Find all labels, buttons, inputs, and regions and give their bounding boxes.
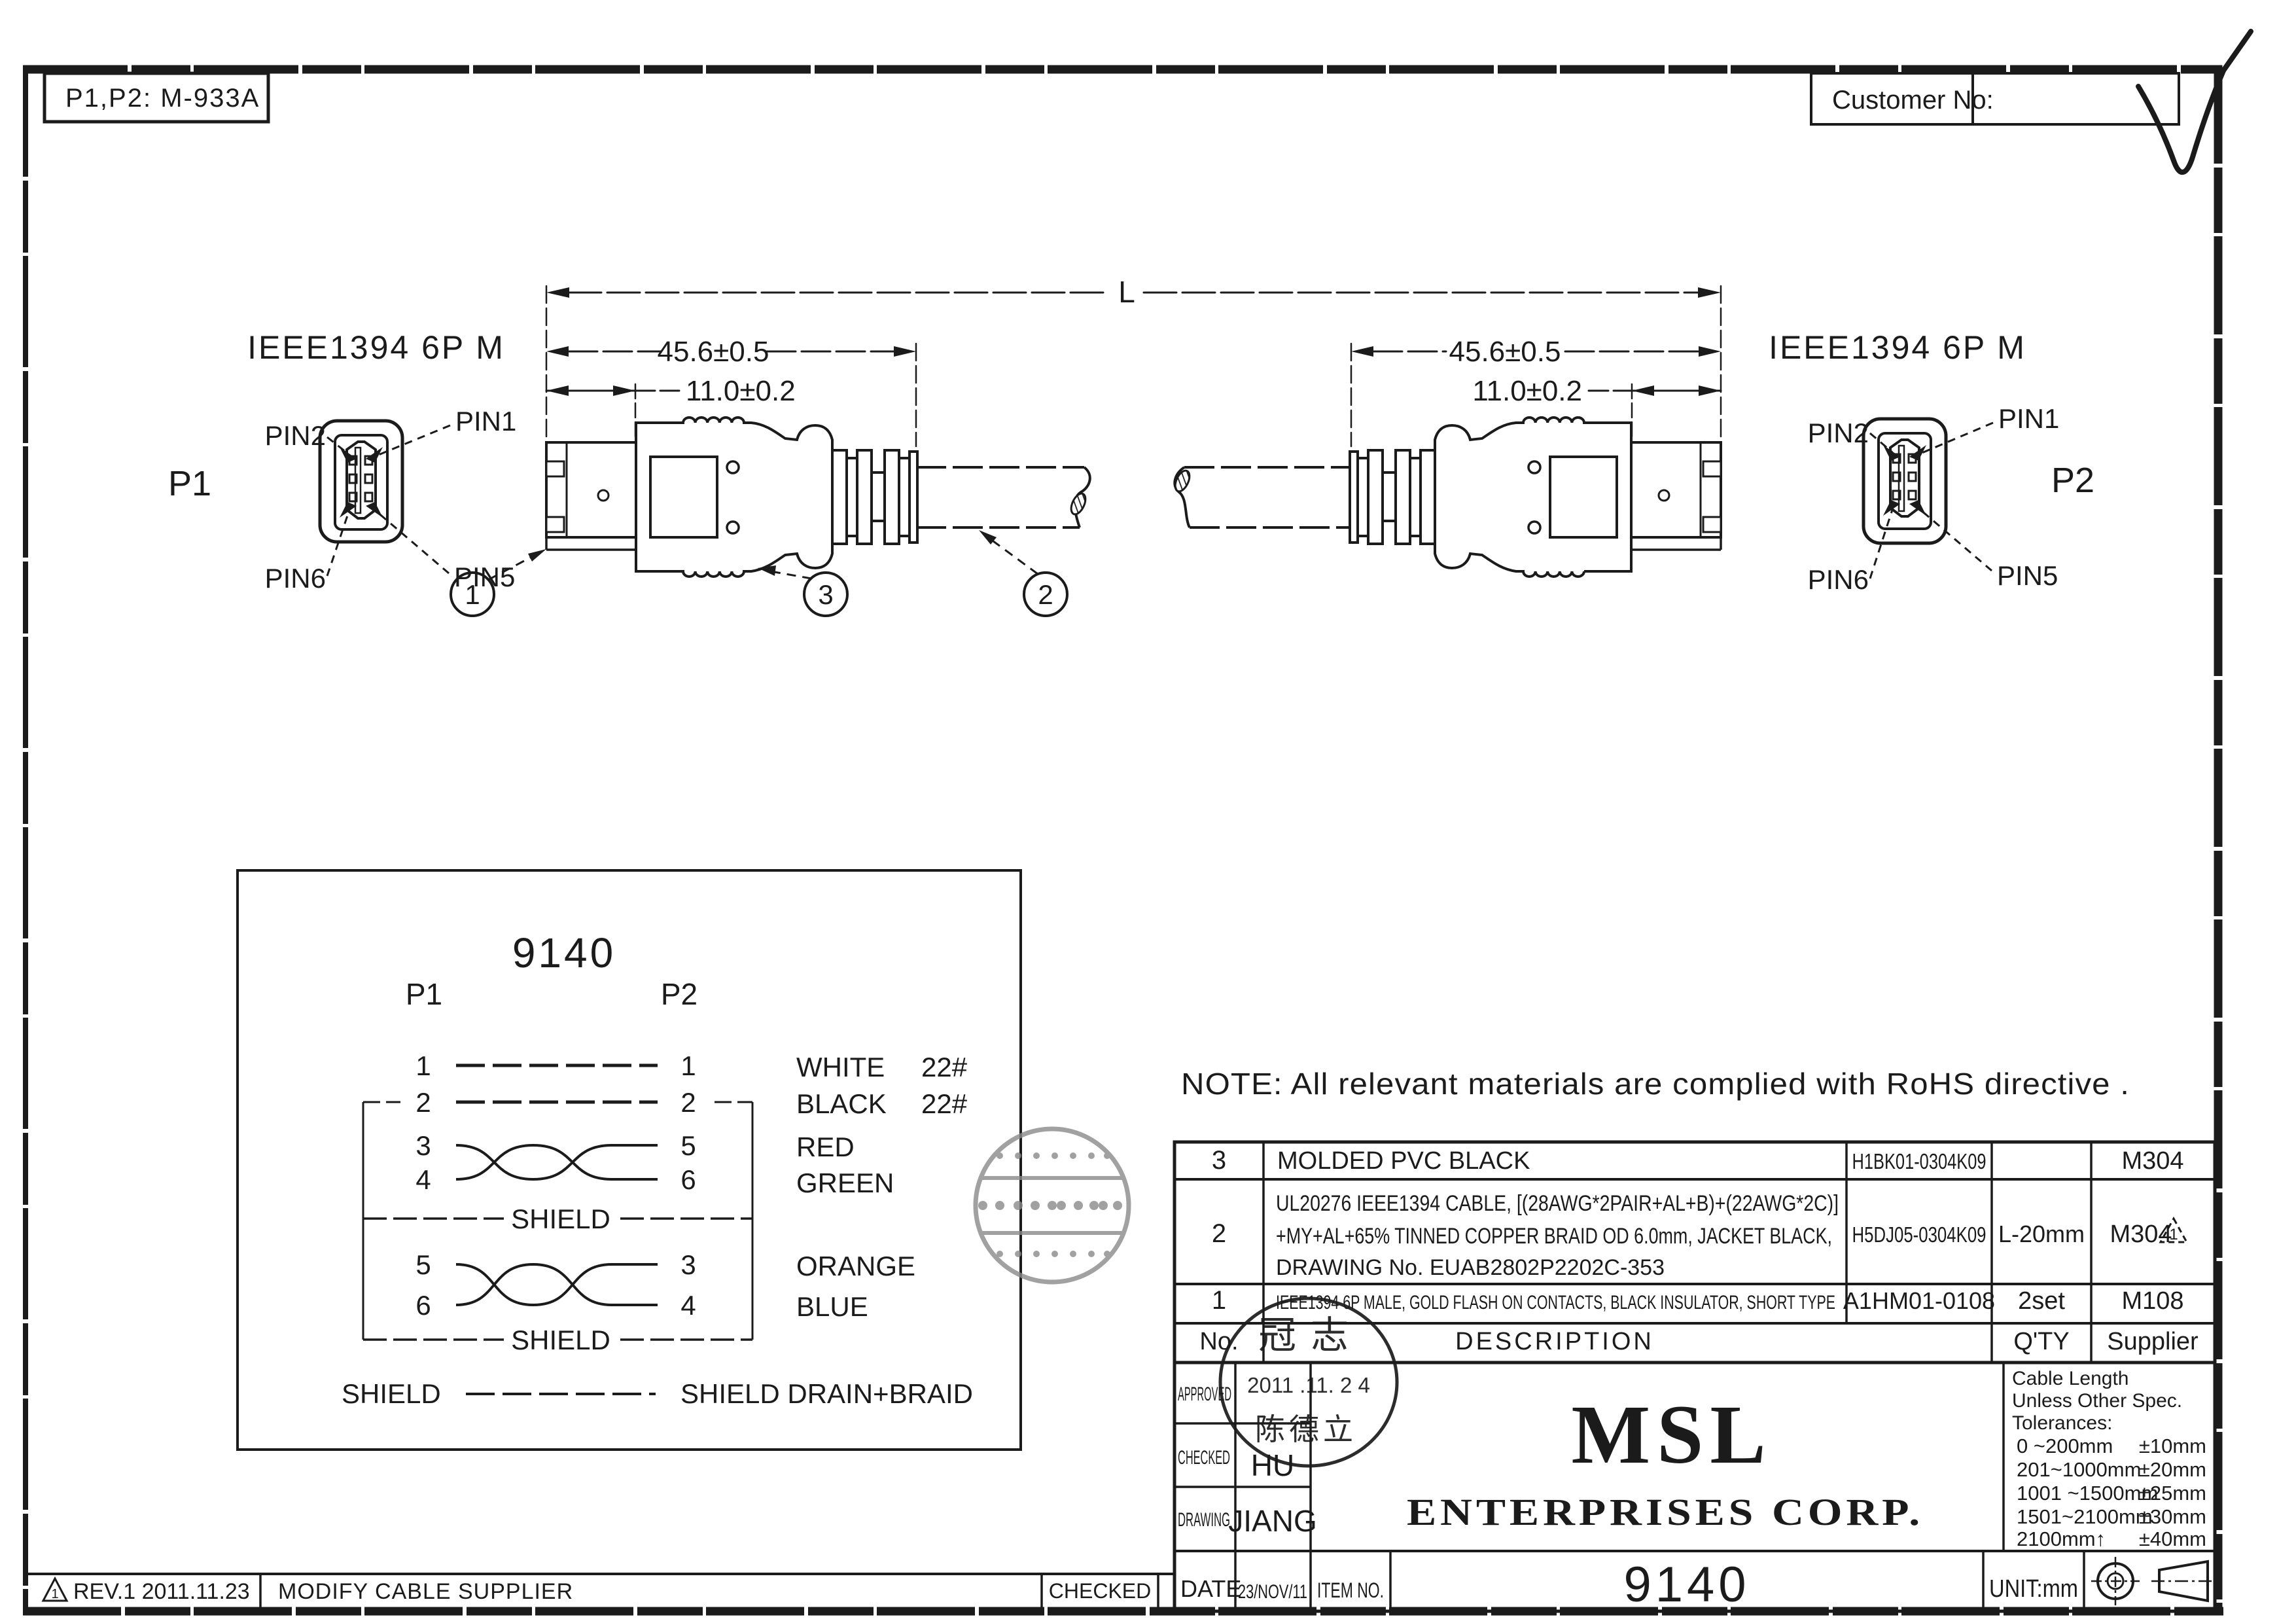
- wire-4-color: GREEN: [796, 1168, 894, 1198]
- wire-6-p1: 6: [415, 1290, 431, 1321]
- tolerance-title-1: Cable Length: [2012, 1368, 2128, 1389]
- bom-header-supplier: Supplier: [2107, 1328, 2199, 1355]
- pin5-label-left: PIN5: [454, 562, 515, 592]
- bom-1-part-no: A1HM01-0108: [1843, 1287, 1995, 1314]
- bom-1-no: 1: [1212, 1286, 1226, 1315]
- bom-2-desc-line1: UL20276 IEEE1394 CABLE, [(28AWG*2PAIR+AL…: [1276, 1191, 1839, 1216]
- shield-label-2: SHIELD: [511, 1325, 610, 1355]
- bom-3-supplier: M304: [2121, 1147, 2183, 1175]
- checked-value: HU: [1251, 1448, 1294, 1482]
- wire-5-color: ORANGE: [796, 1251, 915, 1281]
- bom-2-desc-line3: DRAWING No. EUAB2802P2202C-353: [1276, 1255, 1665, 1280]
- dim-overall-label: L: [1118, 275, 1135, 309]
- pin6-label-right: PIN6: [1808, 564, 1869, 595]
- drawing-sheet: P1,P2: M-933A Customer No: L 45.6±0.5 45…: [0, 0, 2296, 1623]
- pin6-label-left: PIN6: [265, 563, 326, 594]
- revision-triangle-bom-number: 1: [2169, 1226, 2178, 1243]
- dim-shell-right: 11.0±0.2: [1472, 375, 1582, 407]
- wire-4-p1: 4: [415, 1164, 431, 1195]
- bom-1-desc: IEEE1394 6P MALE, GOLD FLASH ON CONTACTS…: [1276, 1292, 1835, 1313]
- bom-2-no: 2: [1212, 1219, 1226, 1248]
- wire-1-color: WHITE: [796, 1052, 885, 1082]
- wire-5-p2: 3: [680, 1249, 696, 1280]
- wire-2-color: BLACK: [796, 1088, 887, 1119]
- pin2-label-right: PIN2: [1808, 418, 1869, 448]
- tolerance-value-1: ±10mm: [2139, 1435, 2206, 1457]
- shield-group-2: SHIELD: [363, 1325, 752, 1355]
- rohs-note: NOTE: All relevant materials are complie…: [1181, 1067, 2130, 1101]
- drawing-canvas: P1,P2: M-933A Customer No: L 45.6±0.5 45…: [0, 0, 2296, 1623]
- tolerance-range-2: 201~1000mm: [2017, 1458, 2141, 1481]
- stamp-signature: 陈德立: [1255, 1412, 1357, 1446]
- checked-label: CHECKED: [1178, 1447, 1230, 1469]
- revision-checked-label: CHECKED: [1049, 1579, 1151, 1603]
- bom-2-desc-line2: +MY+AL+65% TINNED COPPER BRAID OD 6.0mm,…: [1276, 1224, 1832, 1249]
- drawing-label: DRAWING: [1178, 1509, 1230, 1531]
- wire-2-p2: 2: [680, 1087, 696, 1118]
- connector-face-p2: IEEE1394 6P M P2 PIN2 PIN1 PIN6 PIN5: [1769, 329, 2094, 595]
- drawing-value: JIANG: [1228, 1504, 1316, 1538]
- wire-3-color: RED: [796, 1132, 855, 1162]
- tolerance-value-4: ±30mm: [2139, 1505, 2206, 1528]
- shield-drain-row: SHIELD SHIELD DRAIN+BRAID: [342, 1378, 973, 1409]
- bom-3-desc: MOLDED PVC BLACK: [1277, 1147, 1530, 1175]
- overmold-right: [1435, 418, 1631, 577]
- tolerance-value-5: ±40mm: [2139, 1527, 2206, 1550]
- bom-row-2: 2 UL20276 IEEE1394 CABLE, [(28AWG*2PAIR+…: [1212, 1191, 2187, 1280]
- wire-6-p2: 4: [680, 1290, 696, 1321]
- dim-molding-left: 45.6±0.5: [658, 336, 769, 368]
- wire-2-gauge: 22#: [921, 1088, 968, 1119]
- wiring-title: 9140: [512, 929, 616, 976]
- wire-1-p1: 1: [415, 1050, 431, 1081]
- revision-text: REV.1 2011.11.23: [73, 1579, 250, 1604]
- bom-header-qty: Q'TY: [2013, 1328, 2069, 1355]
- pin1-label-right: PIN1: [1998, 403, 2059, 434]
- connector-face-p1: IEEE1394 6P M P1 PIN2 PIN1 PIN6 PIN5: [168, 329, 516, 594]
- bom-2-part-no: H5DJ05-0304K09: [1852, 1222, 1987, 1247]
- projection-symbol: [2091, 1557, 2216, 1605]
- tolerance-range-1: 0 ~200mm: [2017, 1435, 2113, 1457]
- company-name-line1: MSL: [1571, 1388, 1772, 1481]
- ref-box: P1,P2: M-933A: [44, 73, 268, 122]
- revision-strip: 1 REV.1 2011.11.23 MODIFY CABLE SUPPLIER…: [27, 1574, 1174, 1611]
- ref-label: P1,P2: M-933A: [65, 84, 260, 113]
- company-name-line2: ENTERPRISES CORP.: [1407, 1491, 1924, 1533]
- bom-row-3: 3 MOLDED PVC BLACK H1BK01-0304K09 M304: [1212, 1146, 2184, 1175]
- connector-title-left: IEEE1394 6P M: [247, 329, 505, 366]
- pin5-label-right: PIN5: [1997, 560, 2058, 591]
- bom-2-supplier: M304: [2110, 1221, 2172, 1248]
- wiring-p1-header: P1: [406, 977, 442, 1011]
- date-label: DATE: [1180, 1575, 1241, 1602]
- bom-1-qty: 2set: [2018, 1287, 2065, 1315]
- wire-row-1: 1 1 WHITE 22#: [415, 1050, 967, 1082]
- tolerance-title-2: Unless Other Spec.: [2012, 1390, 2182, 1412]
- dim-molding-right: 45.6±0.5: [1449, 336, 1561, 368]
- tolerance-range-5: 2100mm↑: [2017, 1527, 2106, 1550]
- wire-pair-a: 3 4 5 6 RED GREEN: [415, 1130, 894, 1198]
- bom-row-1: 1 IEEE1394 6P MALE, GOLD FLASH ON CONTAC…: [1212, 1286, 2184, 1315]
- wire-3-p1: 3: [415, 1130, 431, 1161]
- dim-shell-left: 11.0±0.2: [686, 375, 796, 407]
- p2-label: P2: [2051, 461, 2094, 500]
- overmold-left: [636, 418, 832, 577]
- stamp-date: 2011 .11. 2 4: [1247, 1373, 1370, 1397]
- tolerance-box: Cable Length Unless Other Spec. Toleranc…: [2012, 1368, 2206, 1550]
- tolerance-range-3: 1001 ~1500mm: [2017, 1482, 2158, 1505]
- shell-right: [1631, 442, 1721, 550]
- customer-box: Customer No:: [1811, 31, 2251, 172]
- revision-triangle-strip-number: 1: [51, 1587, 58, 1601]
- wire-row-2: 2 2 BLACK 22#: [415, 1087, 967, 1119]
- revision-change-text: MODIFY CABLE SUPPLIER: [278, 1579, 573, 1604]
- strain-relief-left: [832, 450, 917, 544]
- tolerance-range-4: 1501~2100mm: [2017, 1505, 2153, 1528]
- wire-2-p1: 2: [415, 1087, 431, 1118]
- wire-4-p2: 6: [680, 1164, 696, 1195]
- date-value: 23/NOV/11: [1238, 1581, 1307, 1603]
- cable-right: [1173, 467, 1350, 527]
- drain-left-label: SHIELD: [342, 1378, 441, 1409]
- strain-relief-right: [1350, 450, 1435, 544]
- p1-label: P1: [168, 464, 211, 503]
- pin1-label-left: PIN1: [455, 406, 516, 437]
- wire-5-p1: 5: [415, 1249, 431, 1280]
- stamp-company-chars: 冠志: [1258, 1314, 1363, 1357]
- cable-left: [916, 467, 1090, 527]
- item-no-label: ITEM NO.: [1317, 1578, 1384, 1602]
- tolerance-title-3: Tolerances:: [2012, 1412, 2112, 1434]
- unit-label: UNIT:mm: [1989, 1575, 2078, 1603]
- wire-1-p2: 1: [680, 1050, 696, 1081]
- pin2-label-left: PIN2: [265, 420, 326, 451]
- tolerance-value-3: ±25mm: [2139, 1482, 2206, 1505]
- wire-1-gauge: 22#: [921, 1052, 968, 1082]
- wire-3-p2: 5: [680, 1130, 696, 1161]
- pen-checkmark: [2138, 31, 2251, 172]
- shell-left: [546, 442, 636, 550]
- wiring-p2-header: P2: [661, 977, 698, 1011]
- tolerance-value-2: ±20mm: [2139, 1458, 2206, 1481]
- shield-label-1: SHIELD: [511, 1204, 610, 1234]
- balloon-3: 3: [818, 579, 833, 610]
- bom-3-no: 3: [1212, 1146, 1226, 1175]
- bom-3-part-no: H1BK01-0304K09: [1852, 1149, 1987, 1173]
- wire-6-color: BLUE: [796, 1291, 868, 1322]
- bom-2-qty: L-20mm: [1998, 1221, 2085, 1247]
- cable-assembly-view: 1 3 2: [451, 418, 1721, 616]
- customer-label: Customer No:: [1832, 86, 1994, 115]
- balloon-2: 2: [1038, 579, 1053, 610]
- bom-1-supplier: M108: [2121, 1287, 2183, 1315]
- connector-title-right: IEEE1394 6P M: [1769, 329, 2026, 366]
- drain-right-label: SHIELD DRAIN+BRAID: [680, 1378, 973, 1409]
- wire-pair-b: 5 6 3 4 ORANGE BLUE: [415, 1249, 915, 1322]
- approval-stamp: 冠志 2011 .11. 2 4 陈德立: [1220, 1298, 1397, 1466]
- bom-header-description: DESCRIPTION: [1455, 1328, 1654, 1355]
- item-no-value: 9140: [1623, 1557, 1750, 1613]
- wiring-diagram: 9140 P1 P2 1 1 WHITE 22# 2 2 BLACK 22# 3…: [238, 870, 1021, 1450]
- gray-stamp: [976, 1129, 1129, 1282]
